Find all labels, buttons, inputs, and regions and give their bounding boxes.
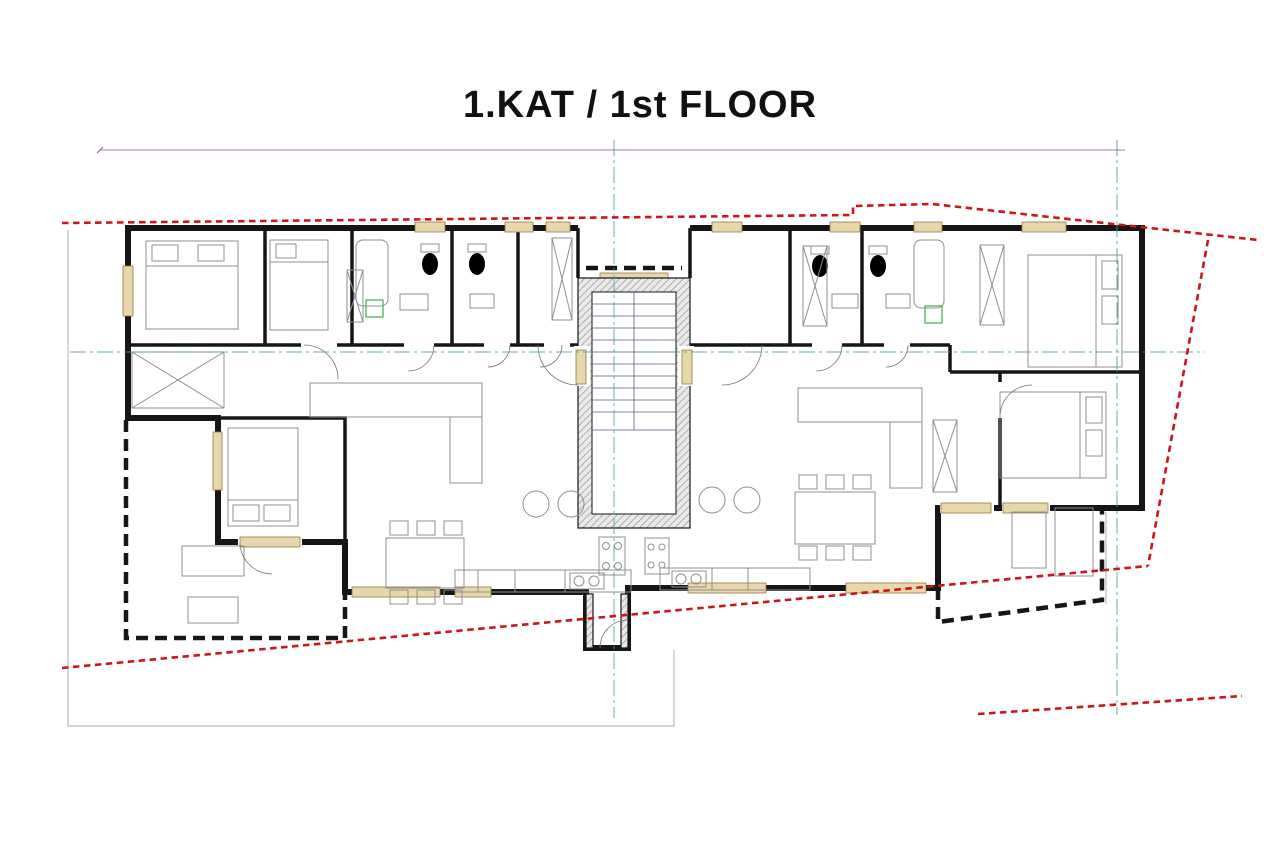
washing-machine (925, 306, 942, 323)
toilet (468, 244, 486, 275)
generated-labels (97, 147, 1125, 153)
washing-machine (366, 300, 383, 317)
toilet (869, 246, 887, 277)
wardrobe (980, 245, 1004, 325)
dimension-chain (97, 147, 1125, 153)
vestibule-wall (586, 594, 593, 648)
wardrobe (933, 420, 957, 492)
vestibule-wall (621, 594, 628, 648)
wardrobe (132, 352, 224, 408)
floor-plan-drawing (0, 0, 1280, 860)
toilet (421, 244, 439, 275)
wardrobe (552, 238, 572, 320)
toilet (811, 246, 829, 277)
floor-plan-page: 1.KAT / 1st FLOOR (0, 0, 1280, 860)
wardrobe (347, 270, 363, 322)
